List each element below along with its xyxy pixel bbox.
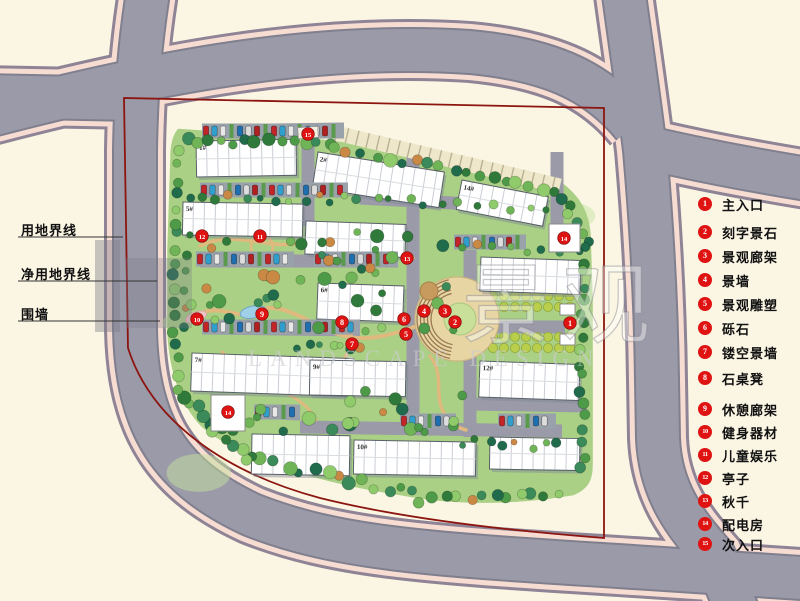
- parking-planter: [482, 235, 486, 249]
- legend-label: 刻字景石: [722, 223, 778, 242]
- legend-number-dot: 7: [698, 345, 712, 359]
- legend-item: 4景墙: [698, 272, 750, 288]
- tree-icon: [577, 425, 587, 435]
- parking-planter: [526, 414, 530, 428]
- car-icon: [508, 416, 513, 426]
- tree-icon: [459, 442, 465, 448]
- parking-planter: [332, 320, 336, 334]
- tree-icon: [212, 294, 226, 308]
- tree-icon: [262, 133, 275, 146]
- tree-icon: [437, 240, 449, 252]
- legend-item: 11儿童娱乐: [698, 447, 778, 463]
- tree-icon: [489, 172, 501, 184]
- label-wall: 围墙: [21, 304, 49, 323]
- tree-icon: [580, 453, 590, 463]
- parking-planter: [264, 320, 268, 334]
- tree-icon: [174, 353, 184, 363]
- parking-planter: [342, 252, 346, 266]
- tree-icon: [373, 153, 382, 162]
- tree-icon: [268, 290, 279, 301]
- tree-icon: [187, 232, 194, 239]
- tree-icon: [459, 244, 466, 251]
- car-icon: [246, 322, 251, 332]
- tree-icon: [453, 198, 462, 207]
- tree-icon: [362, 327, 370, 335]
- plan-marker-number: 15: [305, 132, 312, 139]
- car-icon: [206, 254, 211, 264]
- car-icon: [366, 254, 371, 264]
- tree-icon: [272, 197, 281, 206]
- legend-item: 5景观雕塑: [698, 296, 778, 312]
- tree-icon: [173, 159, 181, 167]
- tree-icon: [370, 305, 381, 316]
- tree-icon: [244, 418, 254, 428]
- tree-icon: [187, 194, 195, 202]
- tree-icon: [383, 153, 397, 167]
- car-icon: [203, 322, 208, 332]
- tree-icon: [339, 281, 347, 289]
- tree-icon: [173, 385, 183, 395]
- tree-icon: [375, 194, 383, 202]
- label-land-boundary: 用地界线: [21, 220, 77, 239]
- tree-icon: [170, 245, 180, 255]
- parking-planter: [376, 252, 380, 266]
- tree-icon: [333, 257, 341, 265]
- plan-marker-number: 8: [340, 318, 344, 327]
- car-icon: [240, 254, 245, 264]
- tree-icon: [222, 237, 231, 246]
- tree-icon: [386, 251, 398, 263]
- plan-marker-number: 14: [225, 410, 232, 417]
- car-icon: [254, 126, 259, 136]
- legend-number-dot: 13: [698, 494, 712, 508]
- tree-icon: [488, 242, 496, 250]
- site-plan-canvas: 1#2#14#5#6#7#9#12#10# 景观 LANDSCAPE DESIG…: [0, 0, 800, 601]
- legend-item: 3景观廊架: [698, 248, 778, 264]
- car-icon: [265, 254, 270, 264]
- tree-icon: [357, 265, 366, 274]
- tree-icon: [202, 135, 213, 146]
- car-icon: [274, 254, 279, 264]
- tree-icon: [302, 411, 316, 425]
- plan-marker: 13: [401, 252, 414, 265]
- tree-icon: [253, 414, 260, 421]
- car-icon: [435, 416, 440, 426]
- car-icon: [305, 322, 310, 332]
- car-icon: [244, 185, 249, 195]
- car-icon: [303, 185, 308, 195]
- tree-icon: [498, 441, 507, 450]
- parking-planter: [516, 235, 520, 249]
- car-icon: [280, 126, 285, 136]
- tree-icon: [419, 202, 426, 209]
- watermark-en: LANDSCAPE DESIGN: [248, 346, 602, 371]
- car-icon: [288, 322, 293, 332]
- tree-icon: [492, 489, 503, 500]
- car-icon: [282, 254, 287, 264]
- tree-icon: [372, 246, 379, 253]
- tree-icon: [285, 198, 291, 204]
- tree-icon: [385, 195, 391, 201]
- tree-icon: [530, 445, 538, 453]
- tree-icon: [379, 290, 386, 297]
- tree-icon: [537, 246, 545, 254]
- tree-icon: [355, 149, 364, 158]
- tree-icon: [244, 195, 252, 203]
- tree-icon: [346, 272, 358, 284]
- car-icon: [280, 322, 285, 332]
- tree-icon: [489, 200, 498, 209]
- tree-icon: [517, 489, 527, 499]
- legend-label: 砾石: [722, 319, 750, 338]
- tree-icon: [543, 439, 550, 446]
- legend-label: 主入口: [722, 195, 764, 214]
- car-icon: [499, 416, 504, 426]
- plan-marker-number: 2: [453, 318, 457, 327]
- legend-item: 9休憩廊架: [698, 401, 778, 417]
- tree-icon: [407, 486, 416, 495]
- tree-icon: [318, 272, 331, 285]
- plan-marker: 9: [256, 308, 269, 321]
- legend-item: 6砾石: [698, 320, 750, 336]
- tree-icon: [172, 187, 183, 198]
- legend-number-dot: 14: [698, 517, 712, 531]
- car-icon: [197, 254, 202, 264]
- car-icon: [288, 126, 293, 136]
- tree-icon: [468, 495, 477, 504]
- sculpture-mound: [420, 282, 438, 300]
- road: [0, 96, 132, 99]
- plan-marker: 15: [302, 128, 315, 141]
- tree-icon: [551, 438, 561, 448]
- tree-icon: [378, 323, 386, 331]
- tree-icon: [509, 176, 521, 188]
- tree-icon: [385, 486, 395, 496]
- car-icon: [254, 322, 259, 332]
- parking-planter: [282, 405, 286, 419]
- tree-icon: [555, 490, 563, 498]
- car-icon: [516, 416, 521, 426]
- tree-icon: [379, 408, 386, 415]
- legend-number-dot: 2: [698, 225, 712, 239]
- tree-icon: [342, 418, 354, 430]
- legend-item: 10健身器材: [698, 424, 778, 440]
- tree-icon: [511, 439, 517, 445]
- tree-icon: [221, 435, 231, 445]
- plan-marker-number: 6: [402, 315, 406, 324]
- tree-icon: [326, 424, 338, 436]
- tree-icon: [397, 483, 405, 491]
- parking-planter: [428, 414, 432, 428]
- tree-icon: [396, 403, 408, 415]
- tree-icon: [170, 219, 181, 230]
- tree-icon: [356, 474, 367, 485]
- tree-icon: [352, 195, 361, 204]
- legend-label: 秋千: [722, 492, 750, 511]
- car-icon: [358, 254, 363, 264]
- car-icon: [498, 237, 503, 247]
- car-icon: [246, 126, 251, 136]
- parking-planter: [262, 183, 266, 197]
- tree-icon: [202, 284, 212, 294]
- tree-icon: [451, 165, 462, 176]
- legend-number-dot: 4: [698, 273, 712, 287]
- tree-icon: [524, 249, 531, 256]
- lawn-patch: [167, 454, 231, 492]
- tree-icon: [323, 255, 334, 266]
- tree-icon: [538, 492, 547, 501]
- tree-icon: [229, 140, 238, 149]
- tree-icon: [279, 427, 288, 436]
- car-icon: [271, 322, 276, 332]
- plan-marker: 12: [196, 230, 209, 243]
- car-icon: [220, 322, 225, 332]
- tree-icon: [257, 195, 263, 201]
- tree-icon: [473, 240, 482, 249]
- tree-icon: [474, 202, 481, 209]
- legend-item: 1主入口: [698, 196, 764, 212]
- car-icon: [289, 407, 294, 417]
- tree-icon: [310, 463, 322, 475]
- legend-label: 休憩廊架: [722, 400, 778, 419]
- tree-icon: [407, 194, 416, 203]
- parking-planter: [298, 320, 302, 334]
- car-icon: [218, 185, 223, 195]
- plan-marker-number: 12: [199, 234, 206, 241]
- tree-icon: [365, 263, 375, 273]
- tree-icon: [241, 455, 252, 466]
- parking-planter: [224, 252, 228, 266]
- tree-icon: [174, 145, 185, 156]
- tree-icon: [193, 400, 205, 412]
- tree-icon: [475, 171, 485, 181]
- tree-icon: [487, 437, 496, 446]
- tree-icon: [537, 184, 550, 197]
- car-icon: [272, 407, 277, 417]
- tree-icon: [351, 294, 364, 307]
- plan-marker: 6: [398, 313, 411, 326]
- car-icon: [248, 254, 253, 264]
- tree-icon: [562, 209, 572, 219]
- tree-icon: [402, 231, 413, 242]
- tree-icon: [295, 238, 307, 250]
- legend-number-dot: 3: [698, 249, 712, 263]
- tree-icon: [247, 135, 260, 148]
- car-icon: [533, 416, 538, 426]
- tree-icon: [210, 195, 219, 204]
- parking-planter: [330, 183, 334, 197]
- legend-number-dot: 15: [698, 537, 712, 551]
- legend-item: 15次入口: [698, 536, 764, 552]
- parking-planter: [230, 124, 234, 138]
- plan-marker: 11: [254, 230, 267, 243]
- tree-icon: [207, 244, 216, 253]
- tree-icon: [412, 155, 422, 165]
- tree-icon: [224, 313, 235, 324]
- car-icon: [286, 185, 291, 195]
- tree-icon: [172, 206, 180, 214]
- building-label: 7#: [195, 356, 203, 364]
- car-icon: [237, 322, 242, 332]
- legend-label: 健身器材: [722, 423, 778, 442]
- plan-marker-number: 3: [443, 307, 447, 316]
- tree-icon: [543, 207, 550, 214]
- tree-icon: [442, 282, 451, 291]
- legend-number-dot: 11: [698, 448, 712, 462]
- tree-icon: [370, 229, 384, 243]
- plan-marker: 14: [558, 232, 571, 245]
- building-label: 6#: [321, 286, 329, 294]
- tree-icon: [170, 339, 181, 350]
- parking-planter: [296, 183, 300, 197]
- tree-icon: [326, 199, 333, 206]
- building-label: 5#: [186, 205, 194, 213]
- tree-icon: [422, 157, 433, 168]
- tree-icon: [523, 181, 533, 191]
- legend: 1主入口2刻字景石3景观廊架4景墙5景观雕塑6砾石7镂空景墙8石桌凳9休憩廊架1…: [698, 0, 798, 601]
- tree-icon: [360, 386, 370, 396]
- internal-road: [468, 404, 587, 406]
- tree-icon: [267, 455, 278, 466]
- legend-label: 景观雕塑: [722, 295, 778, 314]
- plan-marker-number: 11: [257, 234, 263, 241]
- tree-icon: [302, 197, 311, 206]
- car-icon: [312, 185, 317, 195]
- car-icon: [322, 126, 327, 136]
- building-label: 10#: [357, 443, 368, 451]
- tree-icon: [284, 462, 298, 476]
- legend-item: 2刻字景石: [698, 224, 778, 240]
- legend-number-dot: 12: [698, 471, 712, 485]
- legend-number-dot: 10: [698, 425, 712, 439]
- legend-item: 13秋千: [698, 493, 750, 509]
- site-plan-svg: 1#2#14#5#6#7#9#12#10# 景观 LANDSCAPE DESIG…: [0, 0, 800, 601]
- legend-number-dot: 8: [698, 371, 712, 385]
- car-icon: [212, 126, 217, 136]
- tree-icon: [414, 423, 422, 431]
- tree-icon: [354, 228, 361, 235]
- plan-marker: 10: [191, 313, 204, 326]
- car-icon: [252, 185, 257, 195]
- legend-label: 配电房: [722, 515, 764, 534]
- tree-icon: [266, 270, 280, 284]
- car-icon: [348, 322, 353, 332]
- plan-marker: 1: [564, 317, 577, 330]
- tree-icon: [426, 492, 438, 504]
- plan-marker: 7: [346, 338, 359, 351]
- car-icon: [237, 126, 242, 136]
- tree-icon: [286, 237, 295, 246]
- plan-marker-number: 1: [568, 319, 572, 328]
- legend-label: 景观廊架: [722, 247, 778, 266]
- car-icon: [210, 185, 215, 195]
- legend-label: 儿童娱乐: [722, 446, 778, 465]
- car-icon: [269, 185, 274, 195]
- car-icon: [231, 254, 236, 264]
- tree-icon: [278, 137, 288, 147]
- legend-item: 8石桌凳: [698, 370, 764, 386]
- plan-marker-number: 4: [422, 307, 426, 316]
- tree-icon: [172, 370, 184, 382]
- tree-icon: [578, 398, 589, 409]
- legend-item: 7镂空景墙: [698, 344, 778, 360]
- plan-marker-number: 9: [260, 310, 264, 319]
- car-icon: [214, 254, 219, 264]
- watermark-cn: 景观: [462, 259, 662, 356]
- legend-label: 亭子: [722, 469, 750, 488]
- tree-icon: [317, 191, 323, 197]
- tree-icon: [471, 435, 478, 442]
- tree-icon: [274, 301, 282, 309]
- tree-icon: [477, 491, 486, 500]
- watermark-logo-block: [95, 240, 120, 332]
- plan-marker: 5: [400, 328, 413, 341]
- tree-icon: [528, 205, 534, 211]
- car-icon: [278, 185, 283, 195]
- tree-icon: [340, 147, 350, 157]
- car-icon: [235, 185, 240, 195]
- legend-item: 14配电房: [698, 516, 764, 532]
- tree-icon: [369, 485, 378, 494]
- tree-icon: [449, 416, 459, 426]
- tree-icon: [462, 168, 471, 177]
- car-icon: [220, 126, 225, 136]
- tree-icon: [344, 396, 355, 407]
- tree-icon: [442, 491, 452, 501]
- plan-marker-number: 7: [350, 340, 354, 349]
- plan-marker-number: 13: [404, 256, 411, 263]
- tree-icon: [323, 465, 337, 479]
- watermark-logo-block: [126, 258, 192, 328]
- legend-label: 次入口: [722, 535, 764, 554]
- tree-icon: [439, 201, 446, 208]
- tree-icon: [311, 138, 320, 147]
- plan-marker: 4: [418, 305, 431, 318]
- legend-label: 景墙: [722, 271, 750, 290]
- tree-icon: [211, 316, 219, 324]
- tree-icon: [313, 322, 325, 334]
- car-icon: [542, 416, 547, 426]
- plan-marker: 2: [449, 316, 462, 329]
- tree-icon: [389, 393, 402, 406]
- plan-marker: 3: [439, 305, 452, 318]
- legend-number-dot: 5: [698, 297, 712, 311]
- car-icon: [349, 254, 354, 264]
- legend-number-dot: 6: [698, 321, 712, 335]
- tree-icon: [254, 298, 263, 307]
- plan-marker-number: 14: [561, 236, 568, 243]
- tree-icon: [223, 190, 232, 199]
- tree-icon: [575, 462, 586, 473]
- tree-icon: [217, 137, 225, 145]
- tree-icon: [413, 497, 424, 508]
- parking-planter: [332, 124, 336, 138]
- tree-icon: [433, 160, 443, 170]
- tree-icon: [574, 386, 585, 397]
- plan-marker: 8: [336, 316, 349, 329]
- plan-marker: 14: [222, 406, 235, 419]
- legend-label: 石桌凳: [722, 369, 764, 388]
- tree-icon: [506, 206, 514, 214]
- tree-icon: [458, 391, 467, 400]
- label-net-boundary: 净用地界线: [21, 264, 91, 283]
- plan-marker-number: 10: [194, 317, 201, 324]
- tree-icon: [167, 327, 178, 338]
- tree-icon: [329, 142, 340, 153]
- legend-number-dot: 1: [698, 197, 712, 211]
- tree-icon: [577, 437, 587, 447]
- legend-item: 12亭子: [698, 470, 750, 486]
